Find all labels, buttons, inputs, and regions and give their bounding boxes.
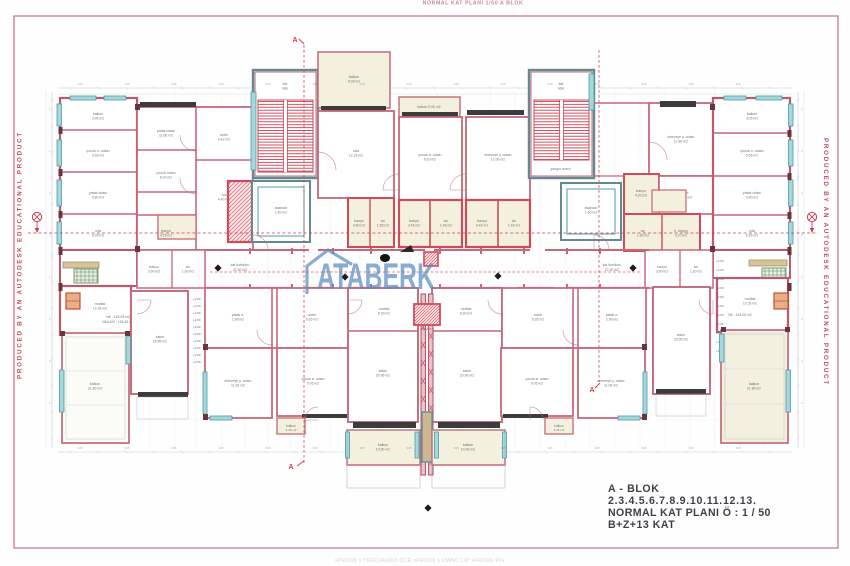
svg-text:1.46 m2: 1.46 m2	[440, 223, 452, 227]
svg-text:asansör: asansör	[275, 206, 289, 210]
svg-text:12.80 m2: 12.80 m2	[674, 139, 688, 143]
svg-text:8.30 m2: 8.30 m2	[378, 311, 390, 315]
svg-text:280: 280	[0, 107, 51, 110]
svg-text:+2.80: +2.80	[716, 295, 724, 299]
svg-text:A: A	[589, 387, 594, 394]
svg-text:wc: wc	[186, 265, 191, 269]
svg-text:banyo: banyo	[409, 219, 419, 223]
svg-text:çocuk a. odası: çocuk a. odası	[301, 377, 324, 381]
svg-text:salon: salon	[379, 369, 388, 373]
svg-text:345: 345	[688, 82, 693, 86]
svg-text:345: 345	[688, 446, 693, 450]
svg-text:280: 280	[0, 233, 51, 236]
svg-text:345: 345	[641, 446, 646, 450]
svg-text:5.65 m2: 5.65 m2	[532, 317, 544, 321]
svg-text:12.06 m2: 12.06 m2	[491, 157, 505, 161]
svg-text:+2.80: +2.80	[193, 325, 201, 329]
svg-text:A - BLOK: A - BLOK	[608, 483, 659, 495]
svg-text:2.35 m2: 2.35 m2	[286, 428, 297, 432]
svg-text:+2.80: +2.80	[193, 332, 201, 336]
svg-text:mutfak: mutfak	[95, 302, 106, 306]
svg-text:280: 280	[801, 359, 850, 363]
svg-text:3.90 m2: 3.90 m2	[148, 269, 160, 273]
svg-text:8.95 m2: 8.95 m2	[746, 233, 758, 237]
svg-text:345: 345	[77, 446, 82, 450]
svg-text:3.46 m2: 3.46 m2	[408, 223, 420, 227]
svg-text:+2.80: +2.80	[716, 322, 724, 326]
svg-text:1.60 m2: 1.60 m2	[275, 210, 287, 214]
svg-text:+2.80: +2.80	[193, 360, 201, 364]
svg-text:wc: wc	[444, 219, 449, 223]
svg-text:çocuk odası: çocuk odası	[156, 171, 175, 175]
svg-text:9.80 m2: 9.80 m2	[92, 195, 104, 199]
svg-text:A: A	[292, 37, 297, 44]
svg-text:280: 280	[801, 275, 850, 279]
svg-text:22.30 m2: 22.30 m2	[605, 268, 619, 272]
svg-text:2.98 m2: 2.98 m2	[606, 317, 618, 321]
svg-text:kat: kat	[283, 82, 288, 86]
svg-text:çocuk o. odası: çocuk o. odası	[740, 149, 763, 153]
svg-text:4.60 m2: 4.60 m2	[353, 223, 365, 227]
svg-text:345: 345	[171, 446, 176, 450]
svg-text:345: 345	[218, 82, 223, 86]
svg-text:kat: kat	[559, 82, 564, 86]
svg-text:çocuk o. odası: çocuk o. odası	[86, 149, 109, 153]
svg-text:holü: holü	[558, 86, 565, 90]
svg-text:yatak o.: yatak o.	[232, 313, 245, 317]
svg-text:9.06 m2: 9.06 m2	[348, 79, 360, 83]
svg-text:345: 345	[735, 82, 740, 86]
svg-text:yangın merd.: yangın merd.	[551, 167, 572, 171]
svg-text:280: 280	[801, 233, 850, 237]
svg-text:345: 345	[453, 446, 458, 450]
svg-text:balkon 5.06 m2: balkon 5.06 m2	[417, 105, 440, 109]
svg-text:280: 280	[801, 107, 850, 111]
svg-text:+2.80: +2.80	[193, 304, 201, 308]
svg-text:20.96 m2: 20.96 m2	[376, 373, 390, 377]
svg-text:hol: hol	[222, 193, 227, 197]
svg-text:280: 280	[801, 317, 850, 321]
svg-text:8.95 m2: 8.95 m2	[92, 233, 104, 237]
svg-text:wc: wc	[641, 229, 646, 233]
svg-text:345: 345	[77, 82, 82, 86]
svg-text:kat koridoru: kat koridoru	[603, 263, 622, 267]
svg-text:ebeveyn y. odası: ebeveyn y. odası	[225, 379, 252, 383]
svg-text:280: 280	[801, 401, 850, 405]
svg-text:9.66 m2: 9.66 m2	[746, 153, 758, 157]
svg-text:+2.80: +2.80	[193, 346, 201, 350]
svg-text:balkon: balkon	[349, 75, 360, 79]
svg-text:balkon: balkon	[747, 112, 758, 116]
svg-text:balkon: balkon	[749, 382, 760, 386]
svg-text:xPROD6 s TRGDJ4x003 OCR xPROD6: xPROD6 s TRGDJ4x003 OCR xPROD6 s DWNC LI…	[335, 558, 505, 564]
svg-text:5.65 m2: 5.65 m2	[306, 317, 318, 321]
svg-text:+2.80: +2.80	[716, 304, 724, 308]
svg-text:oda: oda	[353, 149, 359, 153]
svg-text:TESİSAT: TESİSAT	[421, 326, 433, 331]
svg-text:ATABERK: ATABERK	[317, 256, 435, 297]
svg-text:280: 280	[0, 191, 51, 194]
svg-text:280: 280	[801, 149, 850, 153]
svg-text:balkon: balkon	[93, 112, 104, 116]
svg-text:1.85 m2: 1.85 m2	[637, 233, 649, 237]
svg-text:345: 345	[406, 82, 411, 86]
svg-text:mutfak: mutfak	[745, 297, 756, 301]
svg-text:+2.80: +2.80	[193, 339, 201, 343]
svg-text:ebeveyn y. odası: ebeveyn y. odası	[668, 135, 695, 139]
svg-text:yatak odası: yatak odası	[89, 191, 107, 195]
svg-text:345: 345	[265, 446, 270, 450]
svg-text:2.98 m2: 2.98 m2	[232, 317, 244, 321]
svg-text:345: 345	[265, 82, 270, 86]
svg-text:20.96 m2: 20.96 m2	[460, 373, 474, 377]
svg-text:280: 280	[0, 359, 51, 362]
svg-text:mutfak: mutfak	[461, 307, 472, 311]
svg-text:11.06 m2: 11.06 m2	[231, 383, 245, 387]
svg-text:ebeveyn y. odası: ebeveyn y. odası	[485, 153, 512, 157]
svg-text:çocuk d. odası: çocuk d. odası	[418, 153, 441, 157]
svg-text:balkon: balkon	[90, 382, 101, 386]
svg-text:280: 280	[0, 275, 51, 278]
svg-text:345: 345	[641, 82, 646, 86]
svg-text:3.20 m2: 3.20 m2	[675, 233, 687, 237]
svg-text:9.66 m2: 9.66 m2	[92, 153, 104, 157]
svg-text:345: 345	[124, 446, 129, 450]
svg-text:banyo: banyo	[477, 219, 487, 223]
svg-text:9.80 m2: 9.80 m2	[746, 195, 758, 199]
svg-text:NKA100 : 136.35 m2: NKA100 : 136.35 m2	[102, 320, 134, 324]
svg-text:oda: oda	[749, 229, 755, 233]
svg-text:345: 345	[547, 82, 552, 86]
svg-text:345: 345	[171, 82, 176, 86]
svg-text:345: 345	[453, 82, 458, 86]
svg-text:banyo: banyo	[149, 265, 159, 269]
svg-text:+2.80: +2.80	[193, 318, 201, 322]
svg-text:280: 280	[801, 191, 850, 195]
svg-text:kat koridoru: kat koridoru	[231, 263, 250, 267]
svg-text:+2.80: +2.80	[193, 297, 201, 301]
svg-text:10.35 m2: 10.35 m2	[93, 306, 107, 310]
svg-text:çocuk a. odası: çocuk a. odası	[525, 377, 548, 381]
svg-text:+2.80: +2.80	[716, 313, 724, 317]
svg-text:345: 345	[312, 82, 317, 86]
svg-text:A: A	[288, 464, 293, 471]
svg-text:280: 280	[0, 317, 51, 320]
svg-text:345: 345	[406, 446, 411, 450]
svg-text:yatak odası: yatak odası	[157, 129, 175, 133]
svg-text:+2.80: +2.80	[716, 268, 724, 272]
svg-text:9.20 m2: 9.20 m2	[424, 157, 436, 161]
svg-text:11.06 m2: 11.06 m2	[604, 383, 618, 387]
svg-text:1.85 m2: 1.85 m2	[377, 223, 389, 227]
svg-text:25.95 m2: 25.95 m2	[674, 337, 688, 341]
svg-text:22.30 m2: 22.30 m2	[233, 268, 247, 272]
svg-text:ebeveyn y. odası: ebeveyn y. odası	[598, 379, 625, 383]
svg-text:NK : 145.05 m2: NK : 145.05 m2	[728, 313, 752, 317]
svg-text:antre: antre	[308, 313, 316, 317]
svg-text:2.3.4.5.6.7.8.9.10.11.12.13.: 2.3.4.5.6.7.8.9.10.11.12.13.	[608, 495, 757, 507]
svg-text:6.42 m2: 6.42 m2	[218, 137, 230, 141]
svg-text:345: 345	[594, 446, 599, 450]
svg-text:mutfak: mutfak	[379, 307, 390, 311]
svg-text:balkon: balkon	[463, 443, 474, 447]
svg-text:10.90 m2: 10.90 m2	[461, 447, 475, 451]
svg-text:21.80 m2: 21.80 m2	[88, 386, 102, 390]
svg-text:280: 280	[0, 149, 51, 152]
svg-text:banyo: banyo	[161, 229, 171, 233]
svg-text:+2.80: +2.80	[716, 259, 724, 263]
svg-text:21.80 m2: 21.80 m2	[747, 386, 761, 390]
svg-text:k. banyo: k. banyo	[674, 229, 688, 233]
svg-text:1.60 m2: 1.60 m2	[585, 210, 597, 214]
svg-text:PRODUCED BY AN AUTODESK EDUCAT: PRODUCED BY AN AUTODESK EDUCATIONAL PROD…	[822, 138, 829, 386]
svg-text:+2.80: +2.80	[716, 286, 724, 290]
svg-text:+2.80: +2.80	[193, 311, 201, 315]
svg-text:salon: salon	[677, 333, 686, 337]
svg-text:345: 345	[359, 82, 364, 86]
svg-text:PRODUCED BY AN AUTODESK EDUCAT: PRODUCED BY AN AUTODESK EDUCATIONAL PROD…	[17, 131, 24, 379]
svg-text:280: 280	[0, 401, 51, 404]
svg-text:antre: antre	[220, 133, 228, 137]
svg-text:NORMAL KAT PLANI Ö : 1 / 50: NORMAL KAT PLANI Ö : 1 / 50	[608, 506, 771, 519]
svg-text:11.66 m2: 11.66 m2	[159, 133, 173, 137]
svg-text:1.46 m2: 1.46 m2	[508, 223, 520, 227]
svg-text:wc: wc	[694, 265, 699, 269]
svg-text:345: 345	[735, 446, 740, 450]
svg-text:10.35 m2: 10.35 m2	[743, 301, 757, 305]
svg-text:oda: oda	[95, 229, 101, 233]
svg-text:12.26 m2: 12.26 m2	[349, 153, 363, 157]
svg-text:25.95 m2: 25.95 m2	[153, 339, 167, 343]
svg-text:+2.80: +2.80	[716, 277, 724, 281]
svg-text:salon: salon	[156, 335, 165, 339]
svg-text:1.60 m2: 1.60 m2	[690, 269, 702, 273]
svg-text:9.06 m2: 9.06 m2	[531, 381, 543, 385]
svg-text:+2.80: +2.80	[193, 353, 201, 357]
svg-text:2.35 m2: 2.35 m2	[554, 428, 565, 432]
svg-text:yatak odası: yatak odası	[743, 191, 761, 195]
svg-text:yatak o.: yatak o.	[606, 313, 619, 317]
svg-text:3.46 m2: 3.46 m2	[476, 223, 488, 227]
svg-text:345: 345	[312, 446, 317, 450]
svg-text:wc: wc	[512, 219, 517, 223]
svg-text:345: 345	[500, 82, 505, 86]
svg-text:8.30 m2: 8.30 m2	[460, 311, 472, 315]
svg-text:8.20 m2: 8.20 m2	[160, 175, 172, 179]
svg-text:salon: salon	[463, 369, 472, 373]
svg-text:asansör: asansör	[585, 206, 599, 210]
svg-text:1.60 m2: 1.60 m2	[182, 269, 194, 273]
svg-text:NK : 145.05 m2: NK : 145.05 m2	[106, 315, 130, 319]
svg-text:balkon: balkon	[378, 443, 389, 447]
svg-text:banyo: banyo	[657, 265, 667, 269]
svg-text:B+Z+13 KAT: B+Z+13 KAT	[608, 519, 675, 531]
svg-text:345: 345	[547, 446, 552, 450]
svg-text:345: 345	[500, 446, 505, 450]
svg-text:10.90 m2: 10.90 m2	[376, 447, 390, 451]
svg-text:banyo: banyo	[354, 219, 364, 223]
svg-text:wc: wc	[381, 219, 386, 223]
svg-text:9.06 m2: 9.06 m2	[307, 381, 319, 385]
svg-text:holü: holü	[282, 86, 289, 90]
svg-text:4.25 m2: 4.25 m2	[160, 233, 172, 237]
svg-text:345: 345	[124, 82, 129, 86]
svg-text:3.05 m2: 3.05 m2	[92, 116, 104, 120]
svg-text:3.05 m2: 3.05 m2	[746, 116, 758, 120]
svg-text:antre: antre	[534, 313, 542, 317]
svg-text:345: 345	[359, 446, 364, 450]
svg-text:3.90 m2: 3.90 m2	[656, 269, 668, 273]
svg-text:345: 345	[218, 446, 223, 450]
svg-text:banyo: banyo	[636, 189, 646, 193]
svg-text:NORMAL KAT PLANI 1/50 A BLOK: NORMAL KAT PLANI 1/50 A BLOK	[423, 1, 524, 7]
svg-text:4.20 m2: 4.20 m2	[635, 193, 647, 197]
